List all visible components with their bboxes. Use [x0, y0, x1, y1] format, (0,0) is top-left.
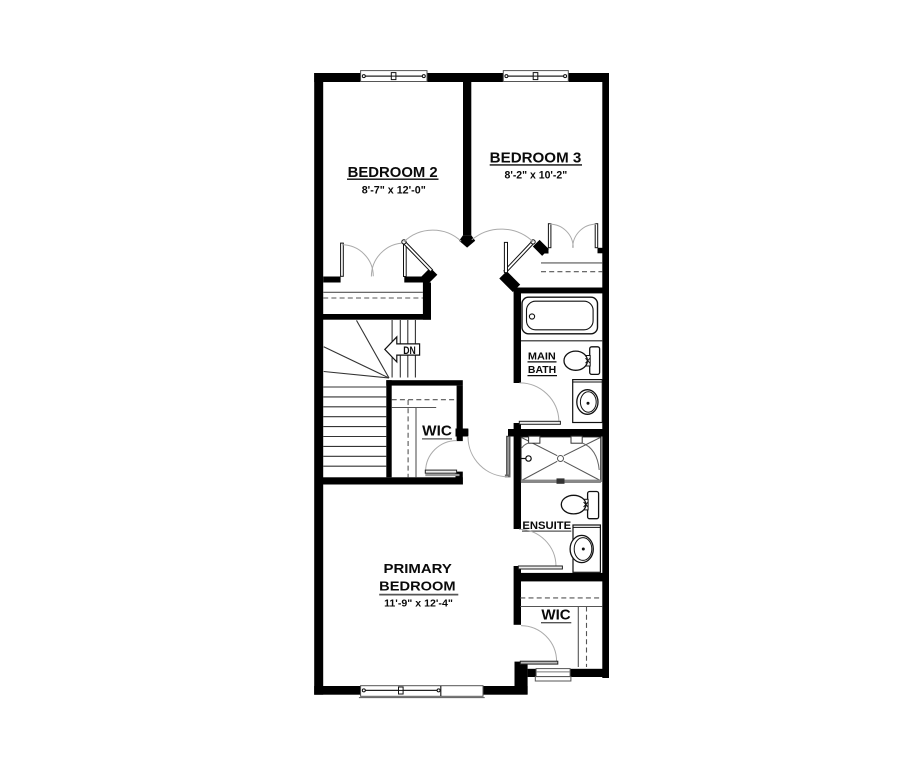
- svg-text:BEDROOM: BEDROOM: [379, 579, 455, 594]
- svg-text:ENSUITE: ENSUITE: [522, 520, 571, 532]
- svg-text:8'-2" x 10'-2": 8'-2" x 10'-2": [505, 170, 568, 182]
- svg-text:8'-7" x 12'-0": 8'-7" x 12'-0": [362, 185, 426, 197]
- svg-text:11'-9" x 12'-4": 11'-9" x 12'-4": [384, 597, 453, 609]
- svg-text:WIC: WIC: [422, 424, 452, 440]
- svg-text:BEDROOM 3: BEDROOM 3: [490, 151, 582, 167]
- svg-text:DN: DN: [403, 345, 416, 357]
- svg-text:BEDROOM 2: BEDROOM 2: [348, 165, 438, 181]
- svg-text:MAIN: MAIN: [528, 351, 556, 363]
- svg-text:PRIMARY: PRIMARY: [384, 561, 453, 576]
- svg-text:WIC: WIC: [541, 608, 571, 624]
- svg-text:BATH: BATH: [528, 364, 556, 376]
